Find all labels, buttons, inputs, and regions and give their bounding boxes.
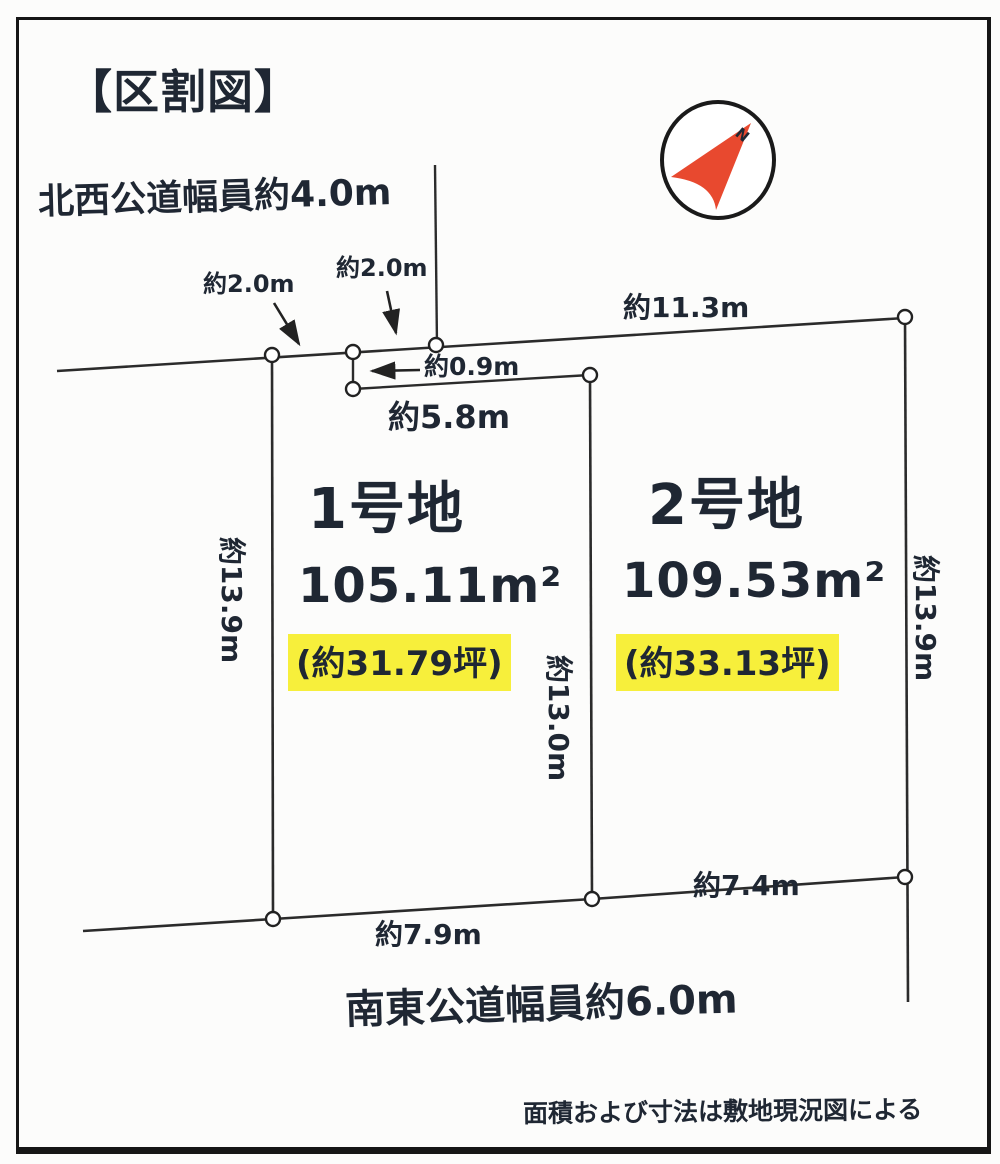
dimension-lot1-bottom: 約7.9m (375, 913, 482, 953)
vertex-marker (898, 310, 912, 324)
vertex-marker (898, 870, 912, 884)
vertex-marker (583, 368, 597, 382)
southeast-road-label: 南東公道幅員約6.0m (344, 967, 738, 1036)
dimension-lot1-top: 約5.8m (388, 392, 510, 438)
dimension-lot2-bottom: 約7.4m (693, 864, 800, 904)
lot2-name: 2号地 (648, 460, 805, 541)
dimension-right-side: 約13.9m (907, 555, 947, 681)
page-title: 【区割図】 (66, 56, 301, 122)
vertex-marker (346, 382, 360, 396)
vertex-markers (265, 310, 912, 926)
vertex-marker (265, 348, 279, 362)
dimension-top-segment-left: 約2.0m (203, 264, 295, 299)
footnote: 面積および寸法は敷地現況図による (523, 1090, 923, 1130)
dimension-top-segment-mid: 約2.0m (336, 248, 428, 283)
vertex-marker (346, 345, 360, 359)
compass (662, 102, 774, 218)
dimension-setback-depth: 約0.9m (424, 347, 519, 383)
lot-divider-boundary (590, 375, 592, 899)
lot2-area-sqm: 109.53m² (622, 553, 886, 609)
vertex-marker (266, 912, 280, 926)
lot1-left-boundary (272, 355, 273, 919)
vertex-marker (585, 892, 599, 906)
reference-line-vertical (435, 165, 437, 346)
dimension-arrow-2m-left (274, 303, 299, 344)
dimension-arrow-setback (372, 370, 420, 371)
lot1-area-sqm: 105.11m² (298, 558, 562, 614)
northwest-road-label: 北西公道幅員約4.0m (37, 163, 392, 225)
lot1-name: 1号地 (308, 464, 465, 545)
subdivision-map-page: 【区割図】 N 北西公道幅員約4.0m 南東公道幅員約6.0m 約2.0m 約2… (0, 0, 1000, 1164)
lot1-area-tsubo: (約31.79坪) (288, 634, 511, 691)
lot2-area-tsubo: (約33.13坪) (616, 634, 839, 691)
dimension-middle-side: 約13.0m (540, 655, 580, 781)
dimension-arrow-2m-mid (387, 291, 396, 333)
dimension-left-side: 約13.9m (213, 537, 253, 663)
dimension-lot2-top: 約11.3m (623, 286, 749, 326)
